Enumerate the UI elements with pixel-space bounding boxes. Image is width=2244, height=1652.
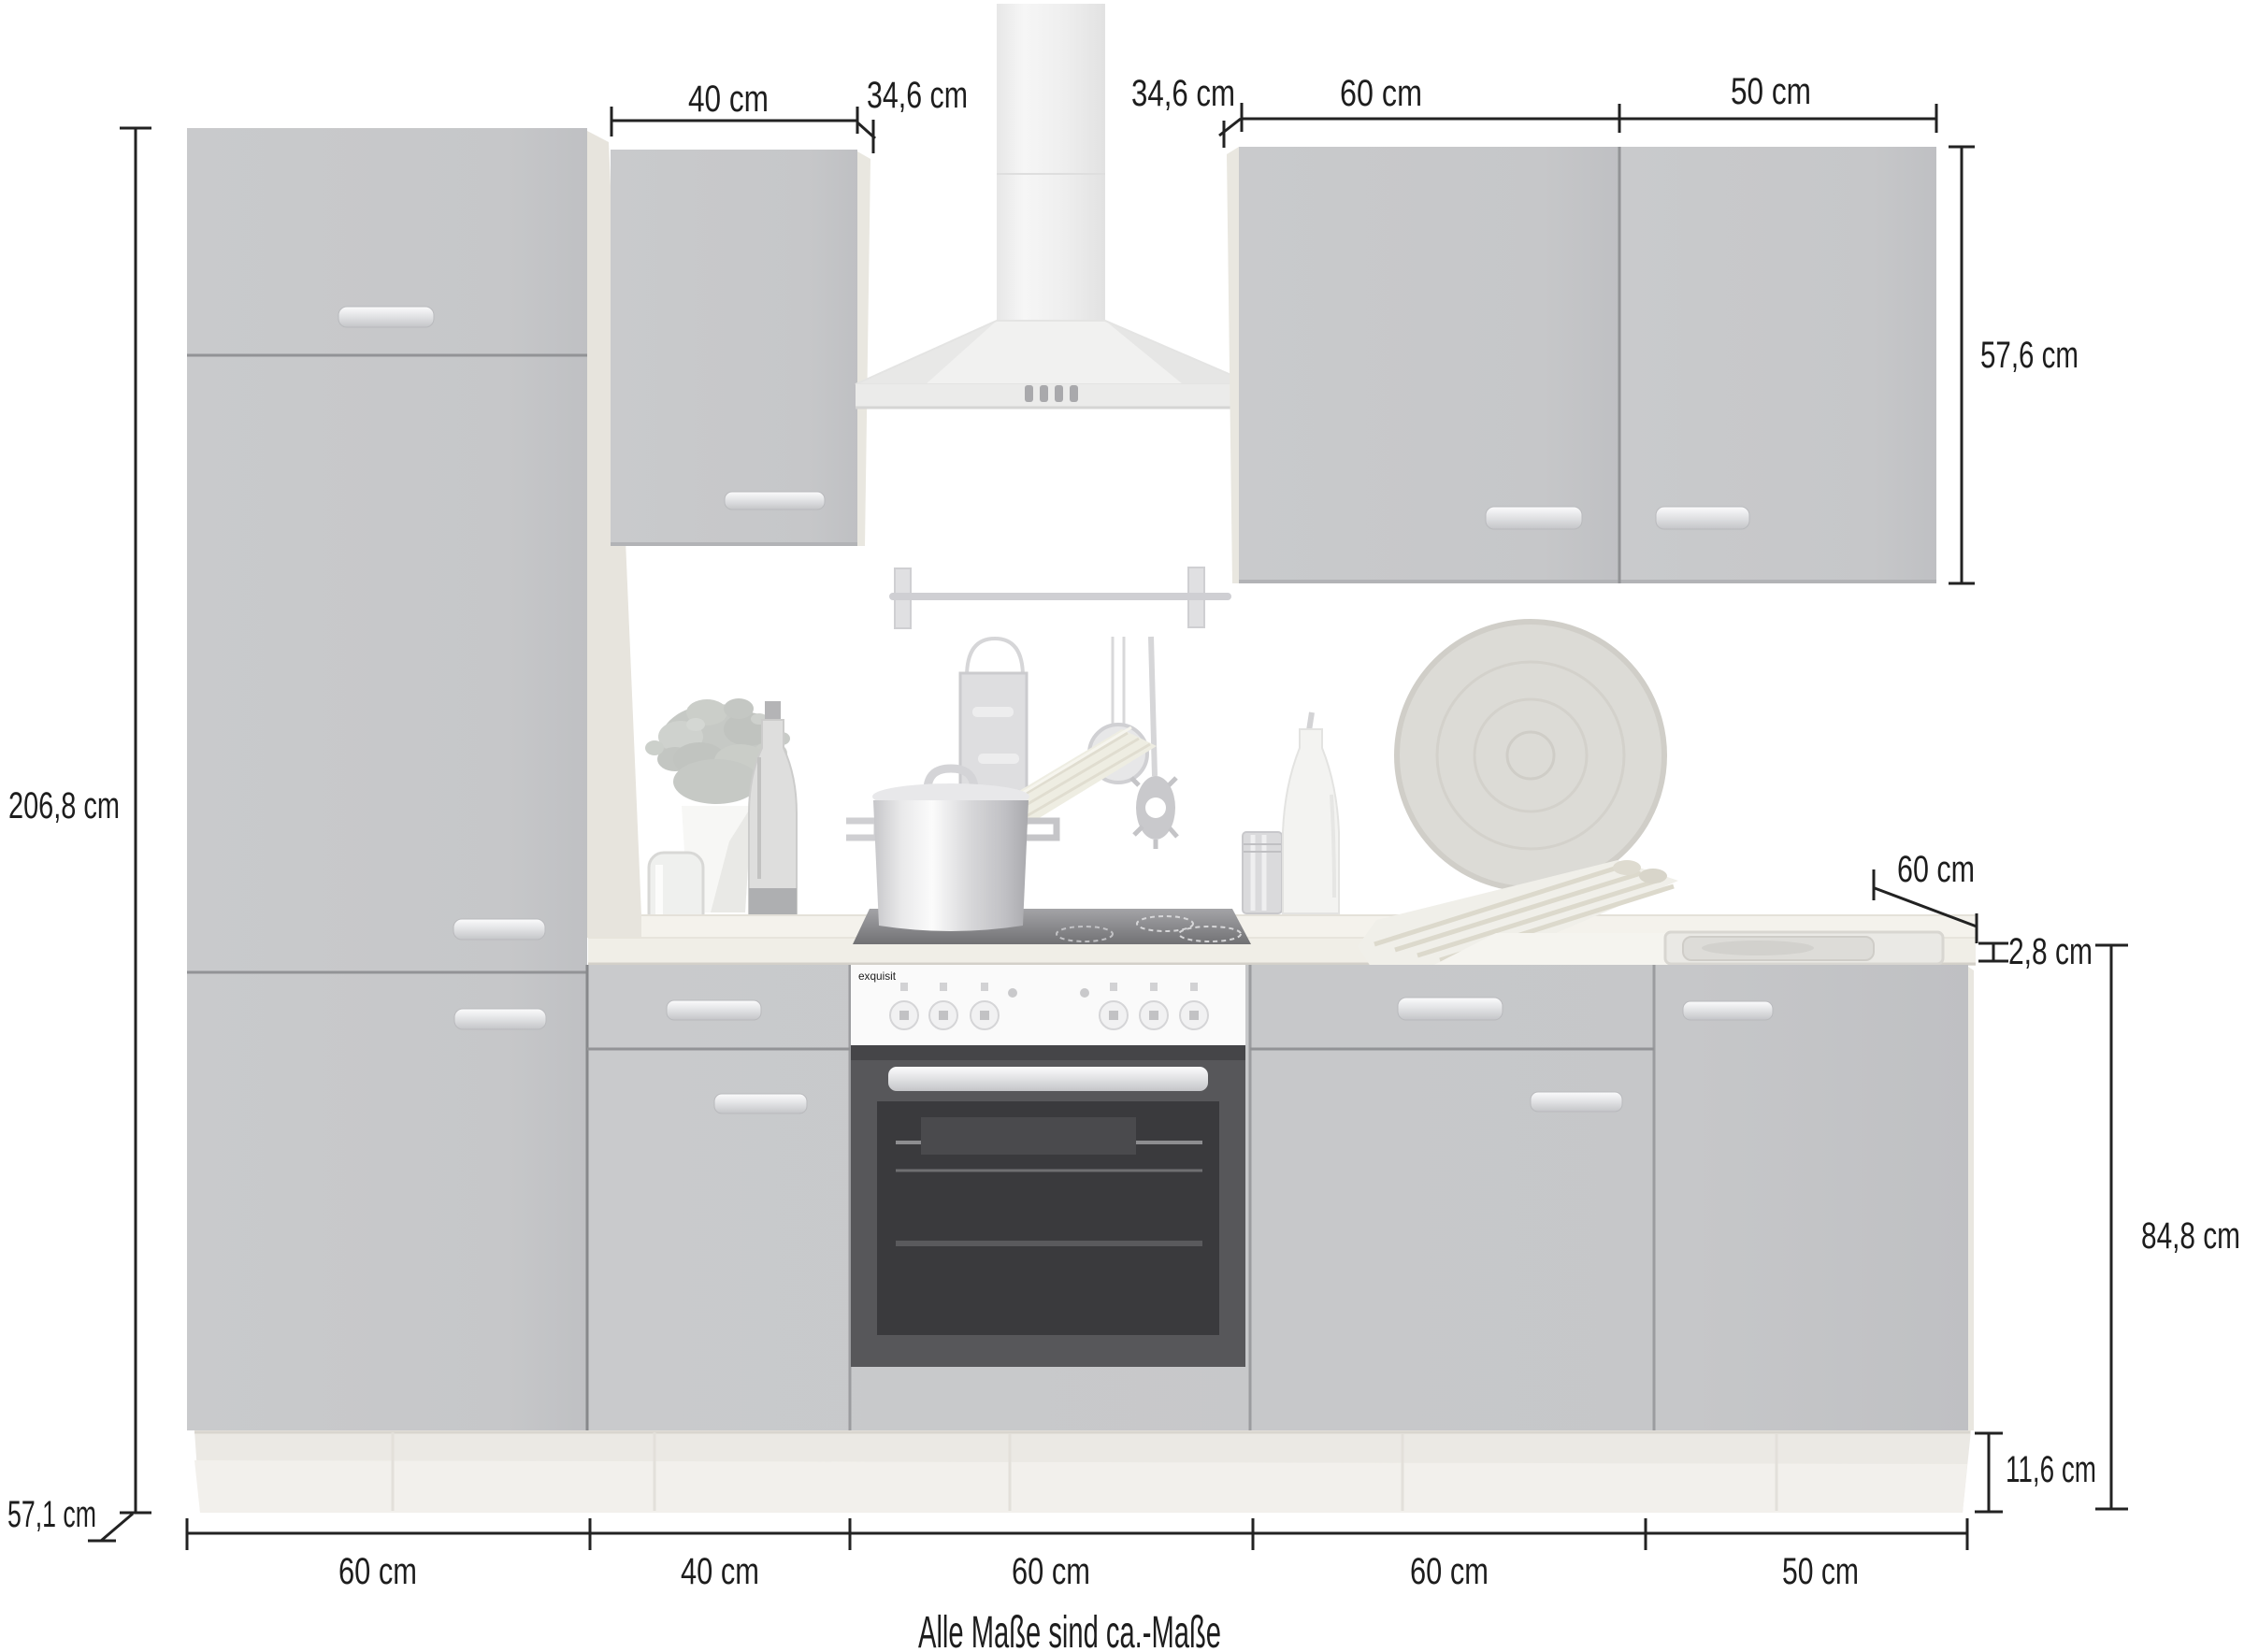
svg-text:40 cm: 40 cm — [681, 1551, 759, 1592]
svg-text:60 cm: 60 cm — [1340, 73, 1422, 114]
svg-text:60 cm: 60 cm — [338, 1551, 417, 1592]
svg-text:34,6 cm: 34,6 cm — [1131, 73, 1235, 114]
svg-text:60 cm: 60 cm — [1012, 1551, 1090, 1592]
svg-text:84,8 cm: 84,8 cm — [2141, 1215, 2240, 1257]
svg-text:50 cm: 50 cm — [1731, 71, 1811, 112]
svg-text:206,8 cm: 206,8 cm — [8, 785, 120, 826]
svg-text:60 cm: 60 cm — [1897, 849, 1975, 890]
svg-text:exquisit: exquisit — [858, 970, 897, 983]
svg-text:57,6 cm: 57,6 cm — [1980, 335, 2079, 376]
svg-text:11,6 cm: 11,6 cm — [2006, 1449, 2096, 1490]
svg-text:57,1 cm: 57,1 cm — [7, 1494, 96, 1535]
svg-text:50 cm: 50 cm — [1782, 1551, 1859, 1592]
svg-text:2,8 cm: 2,8 cm — [2008, 931, 2093, 972]
svg-text:40 cm: 40 cm — [688, 79, 769, 120]
svg-text:34,6 cm: 34,6 cm — [867, 75, 968, 116]
svg-text:Alle Maße sind ca.-Maße: Alle Maße sind ca.-Maße — [918, 1608, 1221, 1652]
svg-text:60 cm: 60 cm — [1410, 1551, 1489, 1592]
